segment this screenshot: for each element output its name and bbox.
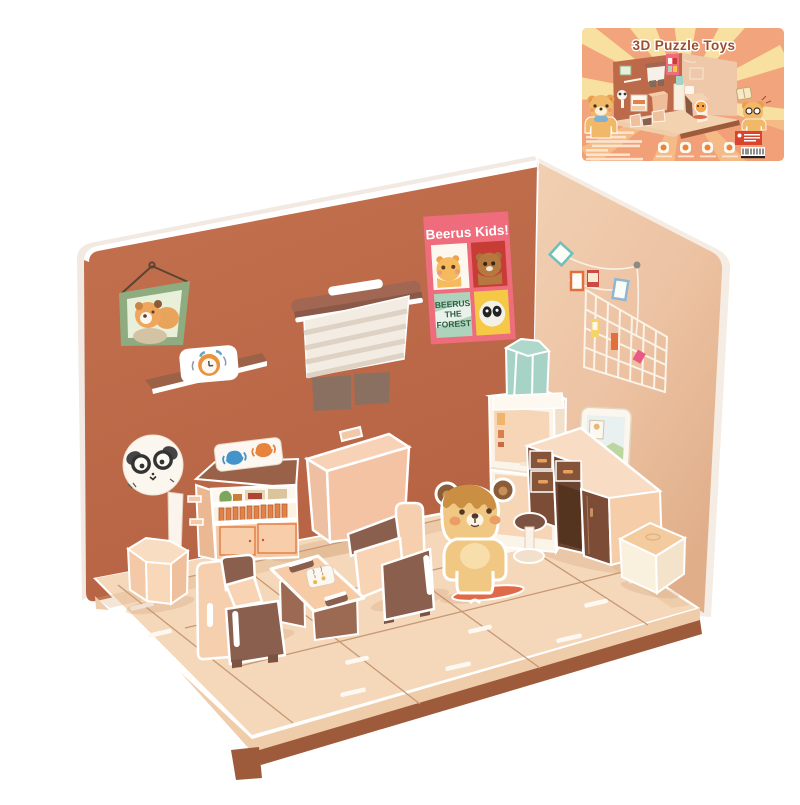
svg-text:3D Puzzle Toys: 3D Puzzle Toys xyxy=(633,38,736,53)
